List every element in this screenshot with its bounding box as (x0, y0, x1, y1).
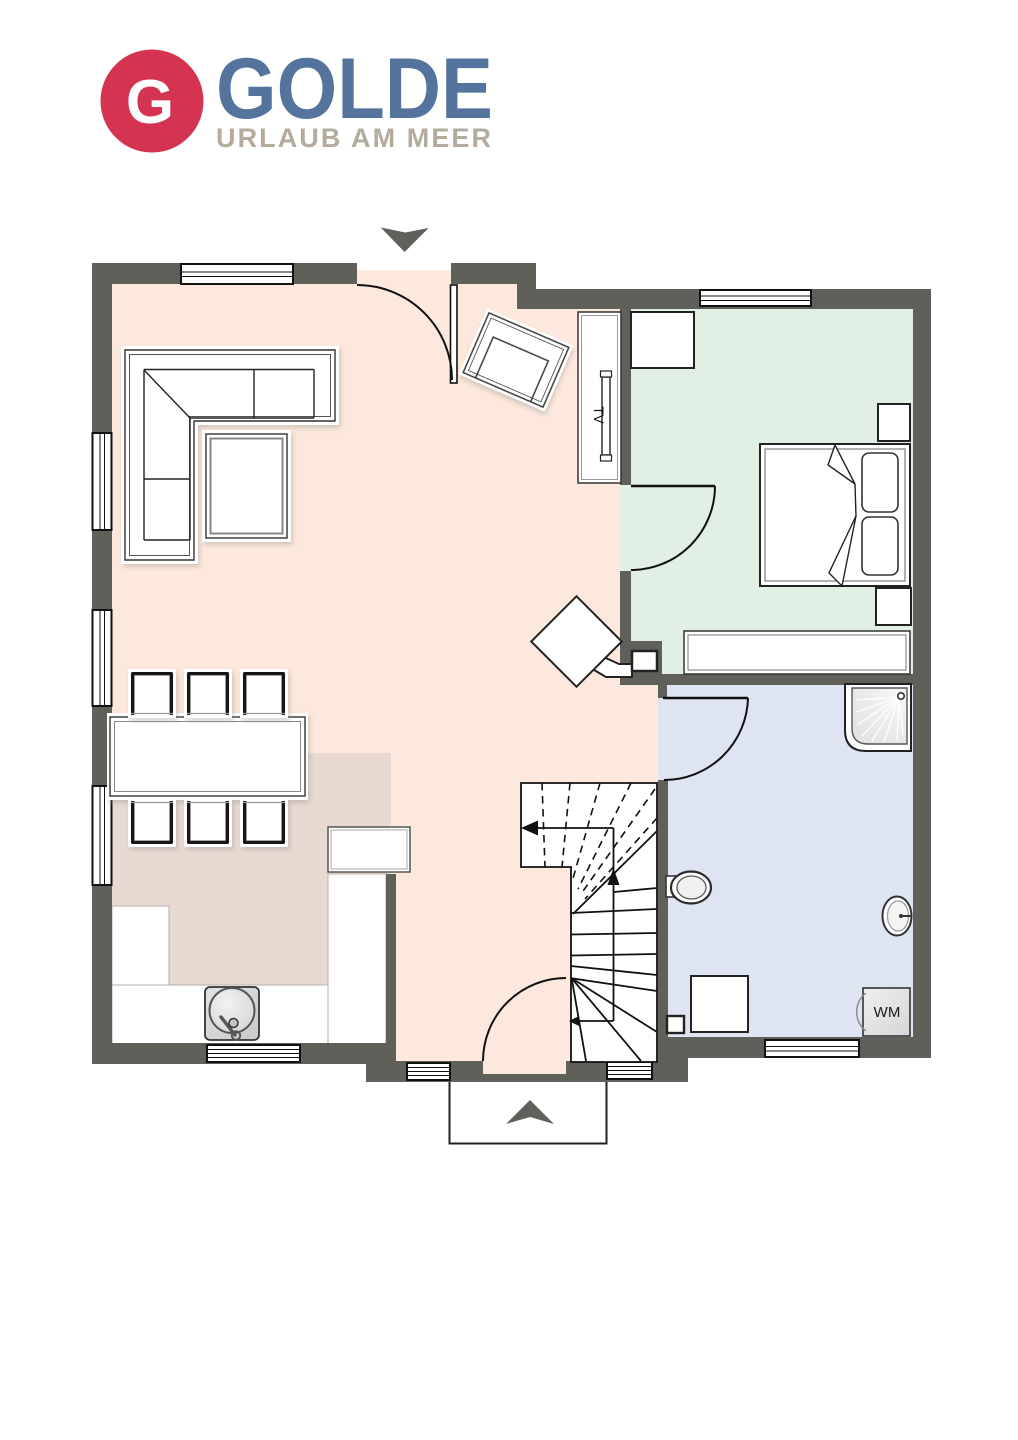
svg-text:TV: TV (591, 406, 606, 423)
svg-text:WM: WM (874, 1004, 901, 1021)
svg-text:G: G (126, 68, 174, 137)
